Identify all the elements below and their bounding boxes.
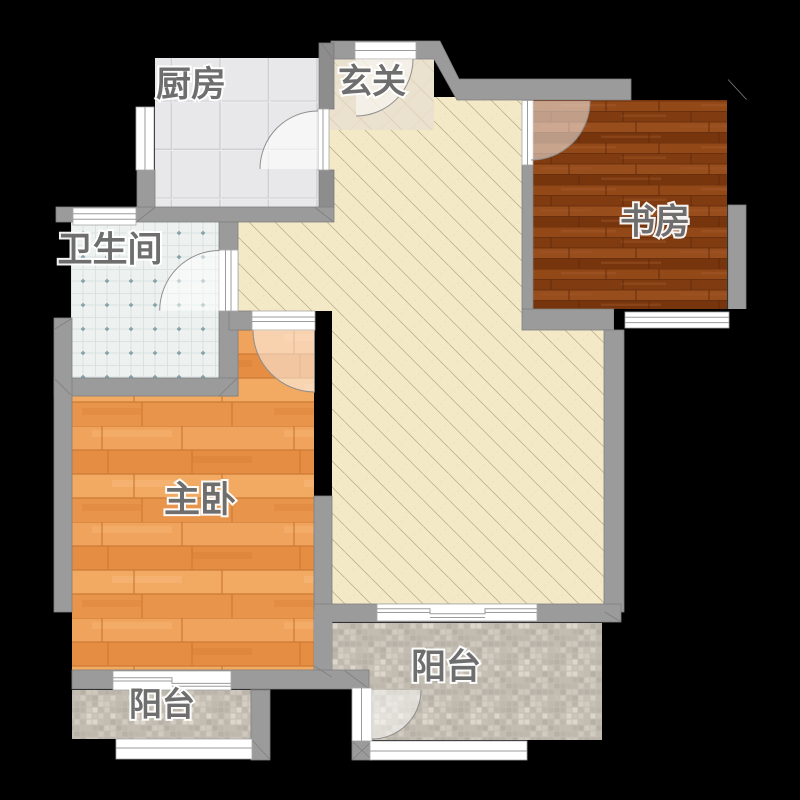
svg-text:玄关: 玄关 [338,63,406,101]
svg-text:阳台: 阳台 [411,648,481,687]
svg-text:主卧: 主卧 [164,479,236,520]
svg-text:书房: 书房 [620,203,690,242]
svg-text:阳台: 阳台 [129,686,195,723]
svg-text:卫生间: 卫生间 [57,231,162,270]
svg-text:厨房: 厨房 [156,65,226,104]
